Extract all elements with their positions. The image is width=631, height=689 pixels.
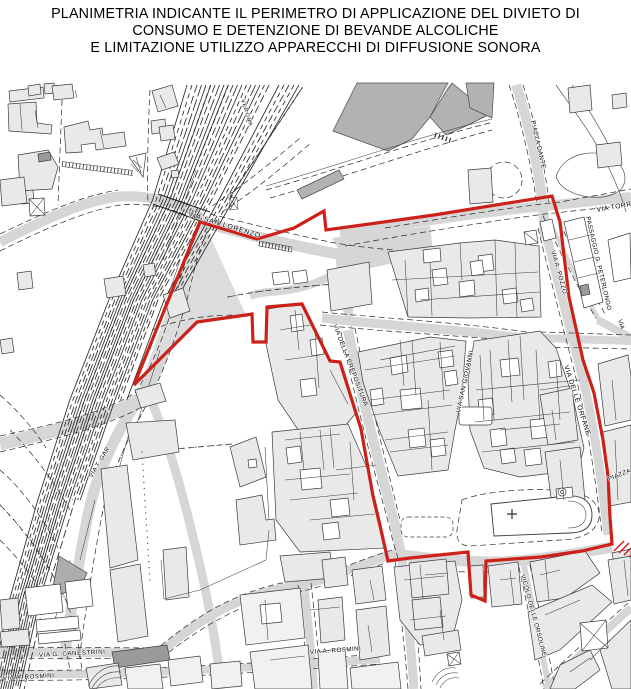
- svg-text:VIA A. ROSMINI: VIA A. ROSMINI: [3, 672, 55, 682]
